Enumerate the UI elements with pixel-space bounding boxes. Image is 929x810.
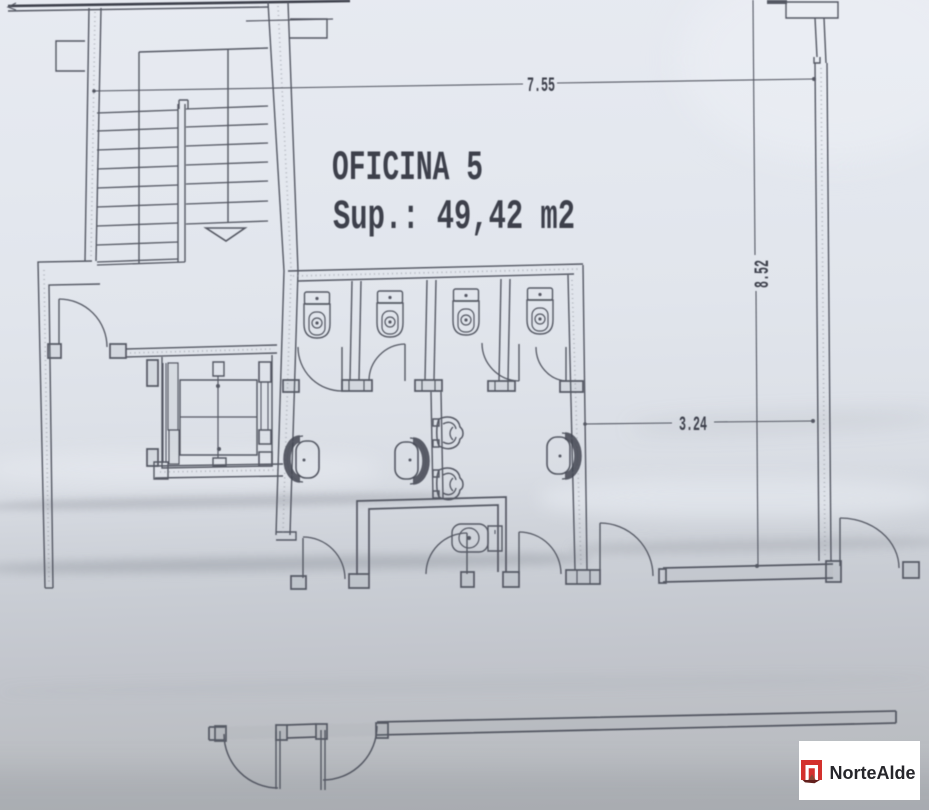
svg-text:3.24: 3.24 [679, 414, 707, 437]
svg-text:7.55: 7.55 [527, 75, 555, 98]
svg-text:OFICINA 5: OFICINA 5 [332, 144, 483, 192]
svg-text:NorteAlde: NorteAlde [830, 763, 916, 783]
svg-text:8.52: 8.52 [752, 260, 775, 288]
svg-text:Sup.: 49,42 m2: Sup.: 49,42 m2 [333, 193, 575, 241]
